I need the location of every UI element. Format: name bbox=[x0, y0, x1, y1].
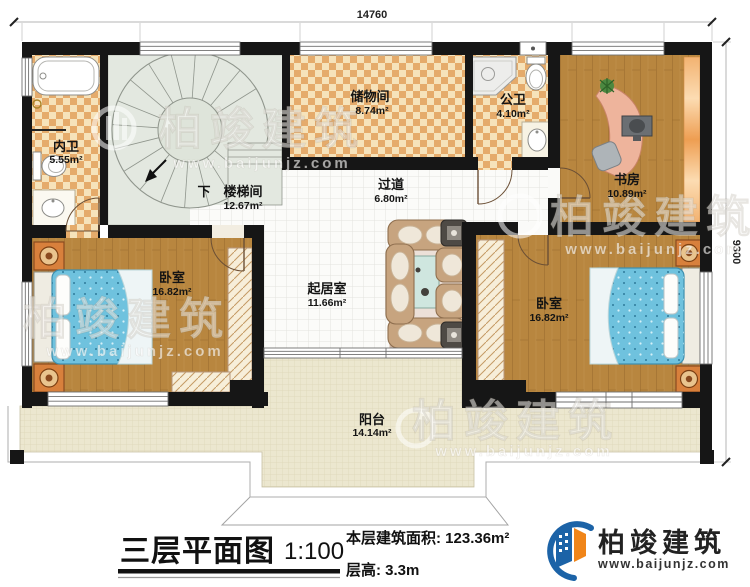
room-label-public-bath: 公卫 4.10m² bbox=[496, 92, 530, 120]
room-label-storage: 储物间 8.74m² bbox=[349, 89, 389, 117]
svg-text:16.82m²: 16.82m² bbox=[152, 286, 192, 298]
svg-text:阳台: 阳台 bbox=[359, 412, 385, 427]
svg-text:楼梯间: 楼梯间 bbox=[223, 184, 262, 199]
svg-text:柏竣建筑: 柏竣建筑 bbox=[158, 105, 366, 154]
window bbox=[520, 42, 546, 55]
nightstand bbox=[34, 364, 64, 392]
window bbox=[48, 392, 168, 406]
wardrobe bbox=[228, 248, 252, 392]
company-logo: 柏竣建筑 www.baijunjz.com bbox=[550, 523, 730, 578]
svg-text:内卫: 内卫 bbox=[53, 139, 79, 154]
svg-text:公卫: 公卫 bbox=[500, 92, 526, 107]
svg-text:起居室: 起居室 bbox=[306, 281, 346, 296]
balcony-post-left bbox=[10, 450, 24, 464]
svg-text:5.55m²: 5.55m² bbox=[49, 154, 83, 166]
floor-plan-page: 14760 9300 bbox=[0, 0, 750, 587]
door-opening-public-bath bbox=[478, 157, 512, 170]
window bbox=[22, 58, 32, 96]
logo-website: www.baijunjz.com bbox=[597, 557, 730, 571]
plan-title: 三层平面图 bbox=[120, 535, 275, 568]
svg-text:8.74m²: 8.74m² bbox=[355, 105, 389, 117]
svg-text:4.10m²: 4.10m² bbox=[496, 108, 530, 120]
svg-text:11.66m²: 11.66m² bbox=[308, 297, 347, 309]
logo-mark bbox=[550, 523, 591, 578]
floor-height-text: 层高: 3.3m bbox=[346, 561, 419, 579]
svg-text:www.baijunjz.com: www.baijunjz.com bbox=[564, 241, 742, 258]
svg-text:16.82m²: 16.82m² bbox=[529, 312, 569, 324]
svg-text:www.baijunjz.com: www.baijunjz.com bbox=[45, 343, 223, 360]
living-room-furniture bbox=[386, 220, 468, 350]
svg-text:12.67m²: 12.67m² bbox=[223, 200, 263, 212]
room-label-corridor: 过道 6.80m² bbox=[374, 177, 408, 205]
window bbox=[572, 42, 664, 55]
svg-text:下: 下 bbox=[197, 184, 210, 199]
toilet bbox=[526, 57, 546, 90]
nightstand bbox=[34, 242, 64, 270]
svg-text:10.89m²: 10.89m² bbox=[607, 188, 647, 200]
sink bbox=[522, 122, 552, 158]
floor-plan-drawing: 14760 9300 bbox=[0, 0, 750, 587]
plan-scale: 1:100 bbox=[284, 538, 344, 565]
svg-text:卧室: 卧室 bbox=[159, 270, 185, 285]
svg-text:卧室: 卧室 bbox=[536, 296, 562, 311]
svg-text:www.baijunjz.com: www.baijunjz.com bbox=[172, 155, 350, 172]
room-label-living: 起居室 11.66m² bbox=[306, 281, 346, 309]
sliding-door bbox=[264, 348, 462, 358]
dimension-top: 14760 bbox=[10, 9, 716, 41]
svg-text:过道: 过道 bbox=[378, 177, 404, 192]
dimension-top-label: 14760 bbox=[357, 9, 388, 21]
floor-area-text: 本层建筑面积: 123.36m² bbox=[346, 529, 509, 547]
svg-text:柏竣建筑: 柏竣建筑 bbox=[412, 397, 620, 446]
svg-text:www.baijunjz.com: www.baijunjz.com bbox=[434, 443, 612, 460]
bed bbox=[590, 268, 700, 364]
window bbox=[700, 272, 712, 364]
logo-company-name: 柏竣建筑 bbox=[598, 527, 726, 558]
svg-text:书房: 书房 bbox=[614, 172, 640, 187]
svg-text:14.14m²: 14.14m² bbox=[352, 427, 392, 439]
svg-text:6.80m²: 6.80m² bbox=[374, 193, 408, 205]
window bbox=[300, 42, 432, 55]
window bbox=[140, 42, 240, 55]
svg-text:储物间: 储物间 bbox=[349, 89, 389, 104]
wardrobe bbox=[478, 240, 504, 392]
title-block: 三层平面图 1:100 本层建筑面积: 123.36m² 层高: 3.3m bbox=[118, 529, 509, 579]
nightstand bbox=[676, 366, 702, 392]
sink bbox=[33, 190, 75, 228]
title-underline bbox=[118, 569, 340, 574]
svg-text:柏竣建筑: 柏竣建筑 bbox=[550, 193, 750, 242]
wardrobe bbox=[172, 372, 230, 392]
roof-outline bbox=[222, 497, 508, 525]
room-label-inner-bath: 内卫 5.55m² bbox=[49, 139, 83, 166]
svg-text:柏竣建筑: 柏竣建筑 bbox=[23, 295, 231, 344]
door-opening-bedroom-left bbox=[212, 225, 244, 238]
